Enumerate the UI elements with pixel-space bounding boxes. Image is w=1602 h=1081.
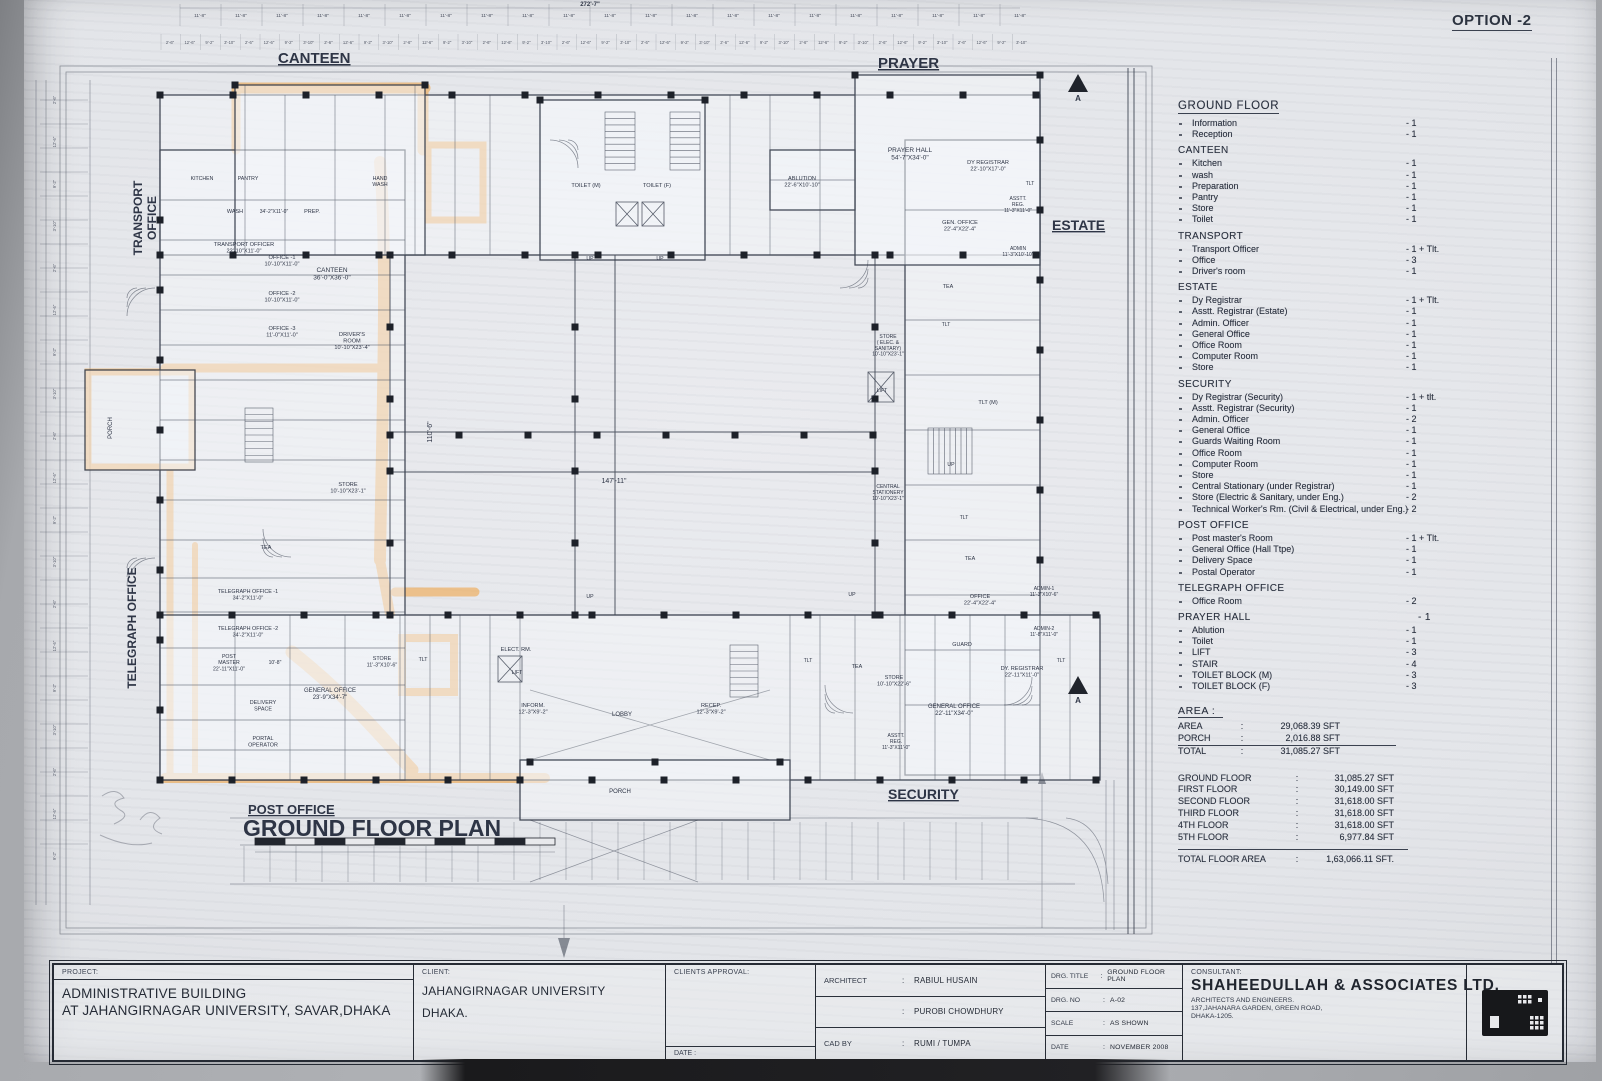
plan-label: UP bbox=[656, 256, 664, 262]
cad-by-label: CAD BY bbox=[816, 1039, 902, 1048]
legend-section-title: POST OFFICE bbox=[1178, 520, 1466, 531]
plan-label: TLT bbox=[804, 658, 813, 664]
svg-text:3'-10": 3'-10" bbox=[620, 40, 631, 45]
svg-text:3'-10": 3'-10" bbox=[224, 40, 235, 45]
legend-item: TOILET BLOCK (F)3 bbox=[1166, 681, 1466, 692]
svg-text:11'-8": 11'-8" bbox=[276, 13, 288, 19]
svg-text:3'-10": 3'-10" bbox=[541, 40, 552, 45]
drg-title-value: GROUND FLOOR PLAN bbox=[1107, 969, 1182, 983]
floor-area-row: SECOND FLOOR31,618.00 SFT bbox=[1178, 796, 1408, 808]
legend-section: POST OFFICEPost master's Room1 + Tlt.Gen… bbox=[1166, 520, 1466, 578]
svg-text:3'-10": 3'-10" bbox=[52, 724, 57, 735]
legend-item: Reception1 bbox=[1166, 129, 1466, 140]
plan-label: 10'-8" bbox=[269, 660, 282, 666]
area-summary: AREA : AREA29,068.39 SFTPORCH2,016.88 SF… bbox=[1178, 705, 1396, 757]
svg-text:9'-2": 9'-2" bbox=[52, 683, 57, 692]
legend-item: Store1 bbox=[1166, 203, 1466, 214]
legend-item: Information1 bbox=[1166, 118, 1466, 129]
svg-text:11'-8": 11'-8" bbox=[563, 13, 575, 19]
legend-item: General Office (Hall Ttpe)1 bbox=[1166, 544, 1466, 555]
legend-section: PRAYER HALL1Ablution1Toilet1 bbox=[1166, 612, 1466, 647]
svg-text:9'-2": 9'-2" bbox=[839, 40, 848, 45]
clients-approval-cell: CLIENTS APPROVAL: DATE : bbox=[666, 965, 816, 1060]
plan-label: GENERAL OFFICE22'-11"X34'-0" bbox=[928, 704, 980, 717]
legend-section-title: CANTEEN bbox=[1178, 145, 1466, 156]
architect-name-2: PUROBI CHOWDHURY bbox=[914, 1007, 1004, 1016]
legend-item: Post master's Room1 + Tlt. bbox=[1166, 533, 1466, 544]
svg-text:11'-8": 11'-8" bbox=[768, 13, 780, 19]
legend-section: TELEGRAPH OFFICEOffice Room2 bbox=[1166, 583, 1466, 607]
plan-label: PRAYER HALL54'-7"X34'-0" bbox=[888, 147, 933, 162]
svg-text:9'-2": 9'-2" bbox=[997, 40, 1006, 45]
legend-item: Postal Operator1 bbox=[1166, 567, 1466, 578]
svg-text:2'-6": 2'-6" bbox=[52, 263, 57, 272]
svg-text:9'-2": 9'-2" bbox=[601, 40, 610, 45]
svg-text:12'-6": 12'-6" bbox=[976, 40, 987, 45]
legend-item: Driver's room1 bbox=[1166, 266, 1466, 277]
total-floor-area-value: 1,63,066.11 SFT. bbox=[1304, 854, 1394, 864]
photo-table-edge bbox=[420, 1059, 1170, 1081]
svg-text:12'-6": 12'-6" bbox=[343, 40, 354, 45]
legend-section-title: TELEGRAPH OFFICE bbox=[1178, 583, 1466, 594]
legend-item: Admin. Officer1 bbox=[1166, 318, 1466, 329]
consultant-address-2: DHAKA-1205. bbox=[1183, 1012, 1466, 1020]
pencil-scribbles bbox=[100, 791, 162, 844]
svg-text:2'-6": 2'-6" bbox=[52, 599, 57, 608]
plan-label: TLT (M) bbox=[978, 400, 998, 406]
date-value: NOVEMBER 2008 bbox=[1110, 1044, 1169, 1051]
svg-text:12'-6": 12'-6" bbox=[422, 40, 433, 45]
plan-label: PORCH bbox=[108, 417, 114, 439]
logo-icon bbox=[1482, 990, 1548, 1036]
svg-text:3'-10": 3'-10" bbox=[52, 556, 57, 567]
svg-text:3'-10": 3'-10" bbox=[1016, 40, 1027, 45]
legend-item: STAIR4 bbox=[1166, 659, 1466, 670]
legend-title: GROUND FLOOR bbox=[1178, 100, 1279, 114]
plan-label: DY REGISTRAR22'-10"X17'-0" bbox=[967, 160, 1009, 173]
plan-label: OFFICE -110'-10"X11'-0" bbox=[265, 255, 300, 268]
plan-label: ADMIN-211'-8"X11'-0" bbox=[1030, 626, 1058, 638]
client-line1: JAHANGIRNAGAR UNIVERSITY bbox=[414, 976, 665, 998]
plan-label: TLT bbox=[1057, 658, 1066, 664]
plan-label: STORE( ELEC. &SANITARY)10'-10"X23'-1" bbox=[872, 334, 904, 358]
legend-item: Office Room1 bbox=[1166, 448, 1466, 459]
legend-section: SECURITYDy Registrar (Security)1 + tlt.A… bbox=[1166, 379, 1466, 515]
plan-label: OFFICE -311'-0"X11'-0" bbox=[266, 326, 297, 339]
client-line2: DHAKA. bbox=[414, 998, 665, 1020]
svg-text:11'-8": 11'-8" bbox=[850, 13, 862, 19]
plan-label: PORTALOPERATOR bbox=[248, 736, 278, 748]
svg-text:12'-6": 12'-6" bbox=[580, 40, 591, 45]
legend-item: Ablution1 bbox=[1166, 625, 1466, 636]
svg-text:2'-6": 2'-6" bbox=[245, 40, 254, 45]
plan-label: LIFT bbox=[512, 670, 523, 676]
client-cell: CLIENT: JAHANGIRNAGAR UNIVERSITY DHAKA. bbox=[414, 965, 666, 1060]
cad-by-value: RUMI / TUMPA bbox=[914, 1039, 971, 1048]
plan-label: HANDWASH bbox=[372, 176, 388, 188]
architect-label: ARCHITECT bbox=[816, 976, 902, 985]
legend-item: Pantry1 bbox=[1166, 192, 1466, 203]
consultant-subtitle: ARCHITECTS AND ENGINEERS. bbox=[1183, 995, 1466, 1004]
svg-text:2'-6": 2'-6" bbox=[52, 95, 57, 104]
plan-label: ADMIN-111'-3"X10'-6" bbox=[1030, 586, 1059, 598]
project-cell: PROJECT: ADMINISTRATIVE BUILDING AT JAHA… bbox=[54, 965, 414, 1060]
legend-item: Store (Electric & Sanitary, under Eng.)2 bbox=[1166, 492, 1466, 503]
plan-label: ABLUTION22'-6"X10'-10" bbox=[784, 176, 819, 189]
area-row: AREA29,068.39 SFT bbox=[1178, 721, 1396, 733]
svg-text:2'-6": 2'-6" bbox=[641, 40, 650, 45]
plan-label: TLT bbox=[942, 322, 951, 328]
plan-label: TLT bbox=[419, 657, 429, 663]
svg-text:272'-7": 272'-7" bbox=[580, 2, 600, 8]
total-floor-area-label: TOTAL FLOOR AREA bbox=[1178, 854, 1290, 864]
legend-item: Guards Waiting Room1 bbox=[1166, 436, 1466, 447]
legend-item: General Office1 bbox=[1166, 425, 1466, 436]
svg-text:12'-6": 12'-6" bbox=[660, 40, 671, 45]
svg-text:9'-2": 9'-2" bbox=[52, 515, 57, 524]
plan-label: KITCHEN bbox=[191, 176, 214, 182]
option-label: OPTION -2 bbox=[1452, 12, 1532, 31]
svg-text:9'-2": 9'-2" bbox=[364, 40, 373, 45]
scale-label: SCALE bbox=[1046, 1020, 1103, 1027]
svg-text:11'-8": 11'-8" bbox=[604, 13, 616, 19]
svg-text:2'-6": 2'-6" bbox=[324, 40, 333, 45]
legend-item: Store1 bbox=[1166, 470, 1466, 481]
architect-name-1: RABIUL HUSAIN bbox=[914, 976, 978, 985]
svg-text:3'-10": 3'-10" bbox=[778, 40, 789, 45]
svg-text:11'-8": 11'-8" bbox=[686, 13, 698, 19]
legend-item: Dy Registrar (Security)1 + tlt. bbox=[1166, 392, 1466, 403]
plan-label: PORCH bbox=[609, 789, 631, 795]
legend-item: Admin. Officer2 bbox=[1166, 414, 1466, 425]
svg-text:9'-2": 9'-2" bbox=[285, 40, 294, 45]
plan-label: UP bbox=[586, 256, 594, 262]
plan-label: UP bbox=[947, 462, 955, 468]
client-label: CLIENT: bbox=[414, 965, 665, 976]
svg-text:12'-6": 12'-6" bbox=[52, 304, 57, 315]
svg-text:12'-6": 12'-6" bbox=[897, 40, 908, 45]
title-block: PROJECT: ADMINISTRATIVE BUILDING AT JAHA… bbox=[52, 963, 1564, 1062]
floor-area-row: GROUND FLOOR31,085.27 SFT bbox=[1178, 773, 1408, 785]
legend-item: Preparation1 bbox=[1166, 181, 1466, 192]
sheet-border-right bbox=[1551, 58, 1557, 963]
legend-item: Asstt. Registrar (Security)1 bbox=[1166, 403, 1466, 414]
plan-label: OFFICE -210'-10"X11'-0" bbox=[265, 291, 300, 304]
legend-item: Computer Room1 bbox=[1166, 351, 1466, 362]
consultant-cell: CONSULTANT: SHAHEEDULLAH & ASSOCIATES LT… bbox=[1183, 965, 1467, 1060]
legend-section-title: PRAYER HALL1 bbox=[1178, 612, 1466, 623]
program-legend: GROUND FLOOR Information1Reception1CANTE… bbox=[1166, 100, 1466, 864]
plan-label: INFORM.12'-3"X9'-2" bbox=[518, 703, 547, 716]
plan-label: CENTRALSTATIONERY10'-10"X23'-1" bbox=[872, 484, 904, 502]
drawing-info-cell: DRG. TITLE GROUND FLOOR PLAN DRG. NO A-0… bbox=[1046, 965, 1183, 1060]
svg-text:2'-6": 2'-6" bbox=[799, 40, 808, 45]
plan-label: A bbox=[1075, 696, 1081, 705]
legend-item: Technical Worker's Rm. (Civil & Electric… bbox=[1166, 504, 1466, 515]
svg-text:11'-8": 11'-8" bbox=[194, 13, 206, 19]
plan-label: LIFT bbox=[877, 388, 888, 394]
legend-item: Dy Registrar1 + Tlt. bbox=[1166, 295, 1466, 306]
floor-plan-drawing: 11'-8"11'-8"11'-8"11'-8"11'-8"11'-8"11'-… bbox=[30, 0, 1160, 960]
legend-section: TRANSPORTTransport Officer1 + Tlt.Office… bbox=[1166, 231, 1466, 278]
svg-text:3'-10": 3'-10" bbox=[52, 220, 57, 231]
zone-label: PRAYER bbox=[878, 55, 939, 72]
svg-text:9'-2": 9'-2" bbox=[522, 40, 531, 45]
legend-item: Office3 bbox=[1166, 255, 1466, 266]
svg-text:11'-8": 11'-8" bbox=[973, 13, 985, 19]
plan-label: UP bbox=[848, 592, 856, 598]
svg-text:3'-10": 3'-10" bbox=[382, 40, 393, 45]
legend-item: Office Room2 bbox=[1166, 596, 1466, 607]
svg-text:9'-2": 9'-2" bbox=[443, 40, 452, 45]
project-line2: AT JAHANGIRNAGAR UNIVERSITY, SAVAR,DHAKA bbox=[54, 1001, 413, 1018]
project-label: PROJECT: bbox=[54, 965, 413, 976]
legend-item: General Office1 bbox=[1166, 329, 1466, 340]
svg-text:2'-6": 2'-6" bbox=[483, 40, 492, 45]
svg-text:2'-6": 2'-6" bbox=[720, 40, 729, 45]
svg-text:11'-8": 11'-8" bbox=[440, 13, 452, 19]
plan-label: TLT bbox=[960, 515, 969, 521]
svg-text:3'-10": 3'-10" bbox=[699, 40, 710, 45]
plan-label: UP bbox=[586, 594, 594, 600]
legend-item: Computer Room1 bbox=[1166, 459, 1466, 470]
legend-item: Store1 bbox=[1166, 362, 1466, 373]
svg-text:2'-6": 2'-6" bbox=[166, 40, 175, 45]
legend-item: Central Stationary (under Registrar)1 bbox=[1166, 481, 1466, 492]
plan-label: 147'-11" bbox=[601, 478, 627, 485]
svg-text:2'-6": 2'-6" bbox=[562, 40, 571, 45]
svg-text:9'-2": 9'-2" bbox=[918, 40, 927, 45]
zone-label: GROUND FLOOR PLAN bbox=[243, 815, 501, 841]
plan-label: PREP. bbox=[304, 209, 320, 215]
svg-text:9'-2": 9'-2" bbox=[205, 40, 214, 45]
svg-text:9'-2": 9'-2" bbox=[681, 40, 690, 45]
svg-text:3'-10": 3'-10" bbox=[303, 40, 314, 45]
plan-label: 34'-2"X11'-0" bbox=[260, 209, 289, 215]
svg-text:11'-8": 11'-8" bbox=[645, 13, 657, 19]
svg-text:11'-8": 11'-8" bbox=[358, 13, 370, 19]
scanned-drawing-photo: OPTION -2 bbox=[0, 0, 1602, 1081]
project-line1: ADMINISTRATIVE BUILDING bbox=[54, 984, 413, 1001]
svg-text:11'-8": 11'-8" bbox=[809, 13, 821, 19]
section-markers bbox=[1068, 74, 1088, 694]
zone-label: ESTATE bbox=[1052, 217, 1105, 233]
legend-item: Toilet1 bbox=[1166, 636, 1466, 647]
legend-item: Toilet1 bbox=[1166, 214, 1466, 225]
svg-text:11'-8": 11'-8" bbox=[932, 13, 944, 19]
svg-text:11'-8": 11'-8" bbox=[1014, 13, 1026, 19]
plan-label: GEN. OFFICE22'-4"X22'-4" bbox=[942, 220, 978, 233]
svg-text:12'-6": 12'-6" bbox=[52, 136, 57, 147]
legend-item: Kitchen1 bbox=[1166, 158, 1466, 169]
legend-section-title: SECURITY bbox=[1178, 379, 1466, 390]
svg-text:11'-8": 11'-8" bbox=[317, 13, 329, 19]
zone-label: TELEGRAPH OFFICE bbox=[125, 567, 139, 688]
floor-areas: GROUND FLOOR31,085.27 SFTFIRST FLOOR30,1… bbox=[1178, 773, 1408, 865]
svg-text:3'-10": 3'-10" bbox=[52, 388, 57, 399]
drg-no-value: A-02 bbox=[1110, 997, 1125, 1004]
plan-label: TEA bbox=[965, 556, 976, 562]
svg-text:12'-6": 12'-6" bbox=[818, 40, 829, 45]
plan-label: DY. REGISTRAR22'-11"X11'-0" bbox=[1001, 666, 1044, 679]
legend-item: Transport Officer1 + Tlt. bbox=[1166, 244, 1466, 255]
svg-text:3'-10": 3'-10" bbox=[937, 40, 948, 45]
plan-label: 110'-6" bbox=[427, 421, 434, 443]
legend-sections: Information1Reception1CANTEENKitchen1was… bbox=[1166, 118, 1466, 692]
svg-text:2'-6": 2'-6" bbox=[52, 767, 57, 776]
plan-label: TLT bbox=[1026, 181, 1035, 187]
drg-title-label: DRG. TITLE bbox=[1046, 973, 1101, 980]
architect-cell: ARCHITECT RABIUL HUSAIN PUROBI CHOWDHURY… bbox=[816, 965, 1046, 1060]
plan-label: PANTRY bbox=[238, 176, 259, 182]
svg-text:2'-6": 2'-6" bbox=[403, 40, 412, 45]
legend-section: Information1Reception1 bbox=[1166, 118, 1466, 140]
svg-text:12'-6": 12'-6" bbox=[264, 40, 275, 45]
svg-text:11'-8": 11'-8" bbox=[481, 13, 493, 19]
svg-text:2'-6": 2'-6" bbox=[52, 431, 57, 440]
svg-text:12'-6": 12'-6" bbox=[501, 40, 512, 45]
legend-section-title: ESTATE bbox=[1178, 282, 1466, 293]
legend-item: wash1 bbox=[1166, 170, 1466, 181]
legend-item: Office Room1 bbox=[1166, 340, 1466, 351]
plan-label: TEA bbox=[943, 284, 954, 290]
legend-item: Delivery Space1 bbox=[1166, 555, 1466, 566]
floor-area-row: THIRD FLOOR31,618.00 SFT bbox=[1178, 808, 1408, 820]
floor-area-row: FIRST FLOOR30,149.00 SFT bbox=[1178, 784, 1408, 796]
svg-text:12'-6": 12'-6" bbox=[52, 472, 57, 483]
svg-text:3'-10": 3'-10" bbox=[462, 40, 473, 45]
plan-label: TEA bbox=[852, 664, 863, 670]
drg-no-label: DRG. NO bbox=[1046, 997, 1103, 1004]
date-label: DATE bbox=[1046, 1044, 1103, 1051]
plan-label: WASH bbox=[227, 209, 243, 215]
plan-label: CANTEEN36'-0"X36'-0" bbox=[313, 267, 351, 282]
zone-label: CANTEEN bbox=[278, 50, 351, 67]
svg-text:11'-8": 11'-8" bbox=[522, 13, 534, 19]
legend-section: ESTATEDy Registrar1 + Tlt.Asstt. Registr… bbox=[1166, 282, 1466, 373]
svg-text:11'-8": 11'-8" bbox=[891, 13, 903, 19]
svg-text:9'-2": 9'-2" bbox=[52, 851, 57, 860]
svg-text:12'-6": 12'-6" bbox=[52, 640, 57, 651]
legend-section: LIFT3STAIR4TOILET BLOCK (M)3TOILET BLOCK… bbox=[1166, 647, 1466, 692]
plan-label: LOBBY bbox=[612, 712, 632, 718]
svg-text:9'-2": 9'-2" bbox=[52, 347, 57, 356]
scale-value: AS SHOWN bbox=[1110, 1020, 1149, 1027]
legend-section: CANTEENKitchen1wash1Preparation1Pantry1S… bbox=[1166, 145, 1466, 225]
legend-item: TOILET BLOCK (M)3 bbox=[1166, 670, 1466, 681]
svg-text:11'-8": 11'-8" bbox=[399, 13, 411, 19]
legend-section-title: TRANSPORT bbox=[1178, 231, 1466, 242]
svg-text:12'-6": 12'-6" bbox=[739, 40, 750, 45]
plan-label: TOILET (M) bbox=[571, 183, 600, 189]
svg-text:2'-6": 2'-6" bbox=[958, 40, 967, 45]
plan-label: TOILET (F) bbox=[643, 183, 671, 189]
plan-label: ELECT. RM. bbox=[501, 647, 532, 653]
svg-text:12'-6": 12'-6" bbox=[52, 808, 57, 819]
consultant-address-1: 137,JAHANARA GARDEN, GREEN ROAD, bbox=[1183, 1004, 1466, 1012]
zone-label: TRANSPORTOFFICE bbox=[131, 180, 159, 255]
zone-label: SECURITY bbox=[888, 786, 959, 802]
floor-area-row: 5TH FLOOR6,977.84 SFT bbox=[1178, 832, 1408, 844]
svg-text:12'-6": 12'-6" bbox=[184, 40, 195, 45]
approval-date-label: DATE : bbox=[666, 1046, 815, 1060]
area-title: AREA : bbox=[1178, 705, 1223, 718]
svg-text:3'-10": 3'-10" bbox=[858, 40, 869, 45]
consultant-label: CONSULTANT: bbox=[1183, 965, 1466, 976]
svg-text:9'-2": 9'-2" bbox=[760, 40, 769, 45]
svg-text:9'-2": 9'-2" bbox=[52, 179, 57, 188]
plan-label: A bbox=[1075, 94, 1081, 103]
svg-text:11'-8": 11'-8" bbox=[235, 13, 247, 19]
clients-approval-label: CLIENTS APPROVAL: bbox=[666, 965, 815, 976]
legend-item: Asstt. Registrar (Estate)1 bbox=[1166, 306, 1466, 317]
floor-area-row: 4TH FLOOR31,618.00 SFT bbox=[1178, 820, 1408, 832]
area-row: TOTAL31,085.27 SFT bbox=[1178, 746, 1396, 758]
svg-text:2'-6": 2'-6" bbox=[879, 40, 888, 45]
area-row: PORCH2,016.88 SFT bbox=[1178, 733, 1396, 746]
total-floor-area: TOTAL FLOOR AREA 1,63,066.11 SFT. bbox=[1178, 849, 1408, 864]
plan-label: TEA bbox=[261, 545, 272, 551]
plan-label: GUARD bbox=[952, 642, 972, 648]
svg-text:11'-8": 11'-8" bbox=[727, 13, 739, 19]
legend-item: LIFT3 bbox=[1166, 647, 1466, 658]
consultant-name: SHAHEEDULLAH & ASSOCIATES LTD. bbox=[1183, 976, 1466, 995]
